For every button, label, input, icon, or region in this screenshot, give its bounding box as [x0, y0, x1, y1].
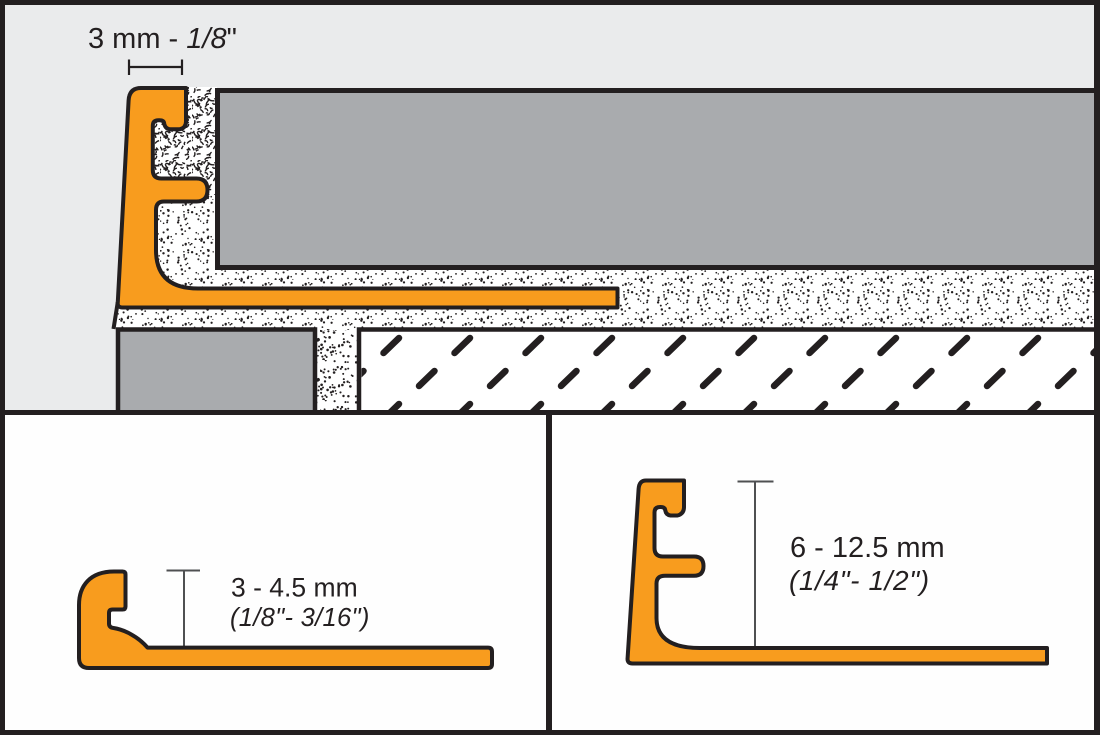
- svg-text:3 mm - 1/8": 3 mm - 1/8": [88, 23, 237, 55]
- svg-text:6 - 12.5 mm: 6 - 12.5 mm: [790, 532, 945, 564]
- svg-text:(1/8"- 3/16"): (1/8"- 3/16"): [230, 604, 370, 632]
- svg-text:3 - 4.5 mm: 3 - 4.5 mm: [231, 573, 358, 603]
- svg-text:(1/4"- 1/2"): (1/4"- 1/2"): [789, 565, 930, 596]
